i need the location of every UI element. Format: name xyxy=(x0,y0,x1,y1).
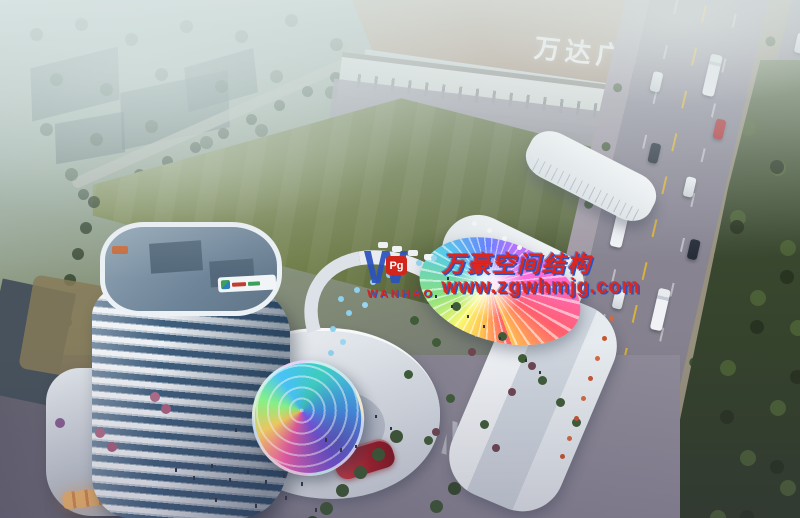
car xyxy=(584,415,598,437)
tree-row xyxy=(88,196,100,208)
watermark: W Pg WANHAO 万豪空间结构 www.zgwhmjg.com xyxy=(360,248,610,318)
watermark-logo: W Pg WANHAO xyxy=(360,248,442,318)
watermark-title: 万豪空间结构 xyxy=(442,252,641,276)
led-screen xyxy=(331,436,397,482)
watermark-logo-name: WANHAO xyxy=(360,288,442,300)
median-trees xyxy=(764,35,776,47)
massing-block xyxy=(184,48,258,112)
crosswalk xyxy=(533,481,652,518)
tower-logo-text-red xyxy=(232,282,246,287)
massing-block xyxy=(120,70,230,150)
car xyxy=(794,32,800,54)
white-umbrellas xyxy=(502,236,507,241)
street-trees xyxy=(390,430,403,443)
crosswalk xyxy=(441,420,488,463)
courtyard xyxy=(285,390,385,462)
parked-cars xyxy=(368,124,374,127)
car xyxy=(647,142,661,164)
tower-logo-text-green xyxy=(248,281,260,286)
blue-umbrellas xyxy=(338,296,344,302)
bus xyxy=(702,53,723,97)
car xyxy=(630,405,644,427)
watermark-url: www.zgwhmjg.com xyxy=(442,276,641,299)
roof-equipment xyxy=(149,240,203,274)
watermark-text: 万豪空间结构 www.zgwhmjg.com xyxy=(442,248,641,318)
car xyxy=(660,356,674,378)
sidewalk-trees xyxy=(612,82,623,93)
tower-logo xyxy=(218,274,277,292)
diagonal-road xyxy=(71,57,350,189)
massing-block xyxy=(30,47,119,122)
car xyxy=(584,354,598,376)
watermark-logo-badge: Pg xyxy=(386,256,407,275)
tree-cluster xyxy=(770,160,784,174)
roof-detail xyxy=(112,246,128,254)
car xyxy=(687,239,701,261)
bus xyxy=(609,205,630,249)
dark-building xyxy=(0,278,76,406)
tree-cluster xyxy=(30,28,43,41)
tree-row xyxy=(330,72,341,83)
tower-glass-shading xyxy=(92,282,290,518)
massing-block xyxy=(55,112,125,165)
tower-logo-icon xyxy=(221,280,230,289)
terrace-shrubs xyxy=(468,348,476,356)
car xyxy=(683,176,697,198)
high-rise-tower xyxy=(92,220,290,518)
tower-facade xyxy=(92,282,290,518)
bus xyxy=(650,288,671,332)
bus xyxy=(610,453,631,497)
aerial-rendering: 万达广场 xyxy=(0,0,800,518)
background-building xyxy=(437,20,492,58)
parking-lot xyxy=(343,37,496,92)
car xyxy=(712,118,726,140)
tower-roof xyxy=(100,222,282,316)
car xyxy=(649,71,663,93)
